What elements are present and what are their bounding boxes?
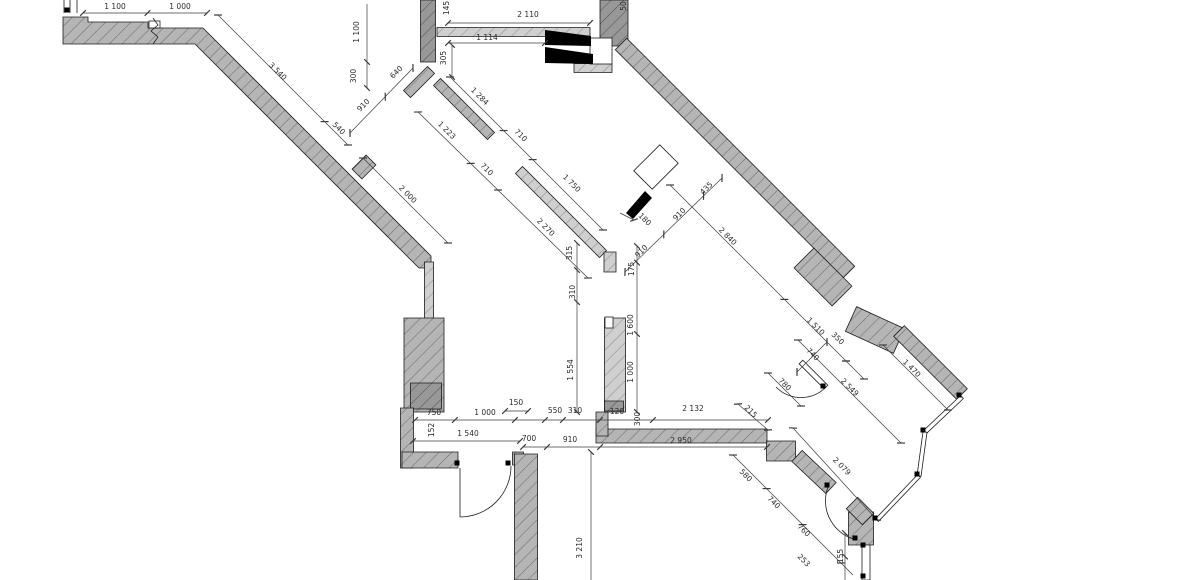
wall-segment	[767, 441, 796, 461]
joint-marker	[853, 536, 858, 541]
dimension-label: 740	[805, 346, 822, 363]
joint-marker	[957, 393, 962, 398]
dimension-label: 315	[565, 246, 574, 261]
wall-segment	[605, 318, 626, 412]
joint-marker	[915, 472, 920, 477]
door-swing-arc	[460, 466, 511, 517]
dimension-label: 760	[796, 522, 813, 539]
dimension-label: 910	[671, 206, 688, 223]
dimension-label: 175	[627, 262, 636, 277]
dimension-label: 740	[766, 494, 783, 511]
dimension-label: 253	[796, 552, 813, 569]
joint-marker	[506, 461, 511, 466]
dimension-label: 215	[743, 403, 760, 420]
dimension-label: 50	[619, 1, 628, 11]
dimension-label: 750	[427, 408, 442, 417]
dimension-label: 1 000	[474, 408, 496, 417]
wall-segment	[402, 452, 458, 468]
joint-marker	[921, 428, 926, 433]
joint-marker	[861, 574, 866, 579]
dimension-label: 1 600	[626, 314, 635, 336]
wall-segment	[845, 307, 904, 354]
floor-plan-svg: 1 1001 0003 5405409106401 100300145502 1…	[0, 0, 1200, 580]
wall-segment	[63, 17, 431, 268]
wall-segment	[574, 64, 612, 73]
window-segment	[634, 145, 678, 189]
dimension-label: 120	[610, 407, 625, 416]
dimension-label: 700	[522, 434, 537, 443]
symbols-layer	[64, 0, 857, 540]
dimension-label: 2 270	[535, 216, 557, 238]
dimension-label: 1 100	[104, 2, 126, 11]
dimension-label: 550	[548, 406, 563, 415]
dimension-label: 710	[513, 127, 530, 144]
wall-segment	[411, 383, 442, 409]
wall-segment	[421, 0, 436, 62]
dimension-label: 435	[698, 180, 715, 197]
dimension-label: 1 000	[169, 2, 191, 11]
dimension-label: 152	[427, 423, 436, 438]
dimension-label: 300	[349, 69, 358, 84]
window-segment	[924, 396, 964, 434]
dimension-line	[350, 68, 413, 133]
dimension-label: 145	[442, 1, 451, 16]
wall-segment	[604, 252, 616, 272]
dimension-label: 2 132	[682, 404, 704, 413]
dimension-tick	[734, 404, 742, 405]
dimension-label: 2 549	[839, 376, 861, 398]
dimension-label: 1 223	[436, 119, 458, 141]
walls-layer	[63, 0, 967, 580]
dimension-label: 350	[830, 330, 847, 347]
dimension-label: 1 284	[469, 85, 491, 107]
dimension-label: 1 554	[566, 359, 575, 381]
dimension-label: 1 510	[805, 315, 827, 337]
dimension-line	[450, 77, 603, 230]
joint-marker	[65, 8, 70, 13]
wall-niche	[605, 317, 613, 328]
dimension-label: 310	[568, 406, 583, 415]
dimension-line	[418, 112, 588, 278]
dimension-label: 300	[633, 412, 642, 427]
dimension-label: 910	[355, 97, 372, 114]
dimension-label: 640	[388, 64, 405, 81]
joint-marker	[825, 483, 830, 488]
dimension-label: 2 110	[517, 10, 539, 19]
dimension-label: 155	[836, 549, 845, 564]
dimension-label: 540	[331, 120, 348, 137]
joint-marker	[821, 384, 826, 389]
dimension-label: 910	[563, 435, 578, 444]
wall-segment	[425, 262, 434, 320]
dimension-line	[846, 361, 864, 379]
dimension-label: 1 540	[457, 429, 479, 438]
floor-plan-canvas: 1 1001 0003 5405409106401 100300145502 1…	[0, 0, 1200, 580]
dimension-label: 180	[637, 211, 654, 228]
dimension-label: 1 114	[476, 33, 498, 42]
dimension-label: 580	[738, 467, 755, 484]
dimension-label: 310	[568, 285, 577, 300]
dimension-tick	[630, 219, 638, 222]
dimension-label: 305	[439, 51, 448, 66]
dimension-label: 2 840	[717, 225, 739, 247]
joint-marker	[873, 516, 878, 521]
wall-segment	[596, 412, 608, 436]
dimension-label: 3 540	[267, 60, 289, 82]
joint-marker	[861, 543, 866, 548]
dimension-label: 3 210	[575, 537, 584, 559]
dimension-label: 2 000	[397, 183, 419, 205]
dimension-text-layer: 1 1001 0003 5405409106401 100300145502 1…	[104, 1, 922, 569]
dimension-label: 1 000	[626, 361, 635, 383]
door-leaf-symbol	[545, 47, 593, 64]
dimension-tick	[764, 430, 772, 431]
dimension-label: 2 079	[831, 455, 853, 477]
window-segment	[876, 475, 921, 522]
wall-niche	[590, 38, 612, 64]
dimension-label: 1 100	[352, 21, 361, 43]
dimension-label: 710	[479, 161, 496, 178]
wall-segment	[515, 454, 538, 580]
dimension-label: 2 950	[670, 436, 692, 445]
wall-niche	[149, 21, 160, 28]
dimension-label: 150	[509, 398, 524, 407]
joint-marker	[455, 461, 460, 466]
wall-segment	[404, 67, 435, 98]
window-segment	[917, 432, 927, 477]
wall-segment	[516, 167, 607, 258]
